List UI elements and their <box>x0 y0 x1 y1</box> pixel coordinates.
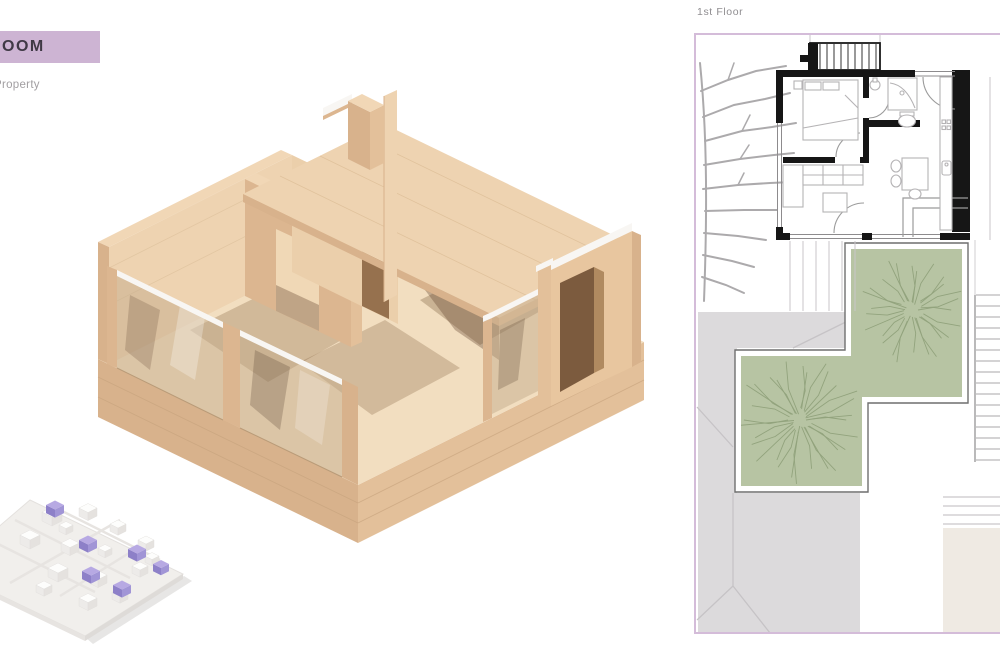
staircase <box>800 43 880 70</box>
title-banner: OOM <box>0 31 100 63</box>
floor-plan <box>694 33 1000 634</box>
subtitle: Property <box>0 79 40 91</box>
site-mini-model <box>0 500 192 644</box>
presentation-scene <box>0 0 1000 666</box>
beige-area <box>943 528 1000 634</box>
model-column <box>348 94 384 170</box>
plan-label: 1st Floor <box>697 6 743 18</box>
isometric-model <box>98 90 644 543</box>
page-title: OOM <box>0 38 45 56</box>
